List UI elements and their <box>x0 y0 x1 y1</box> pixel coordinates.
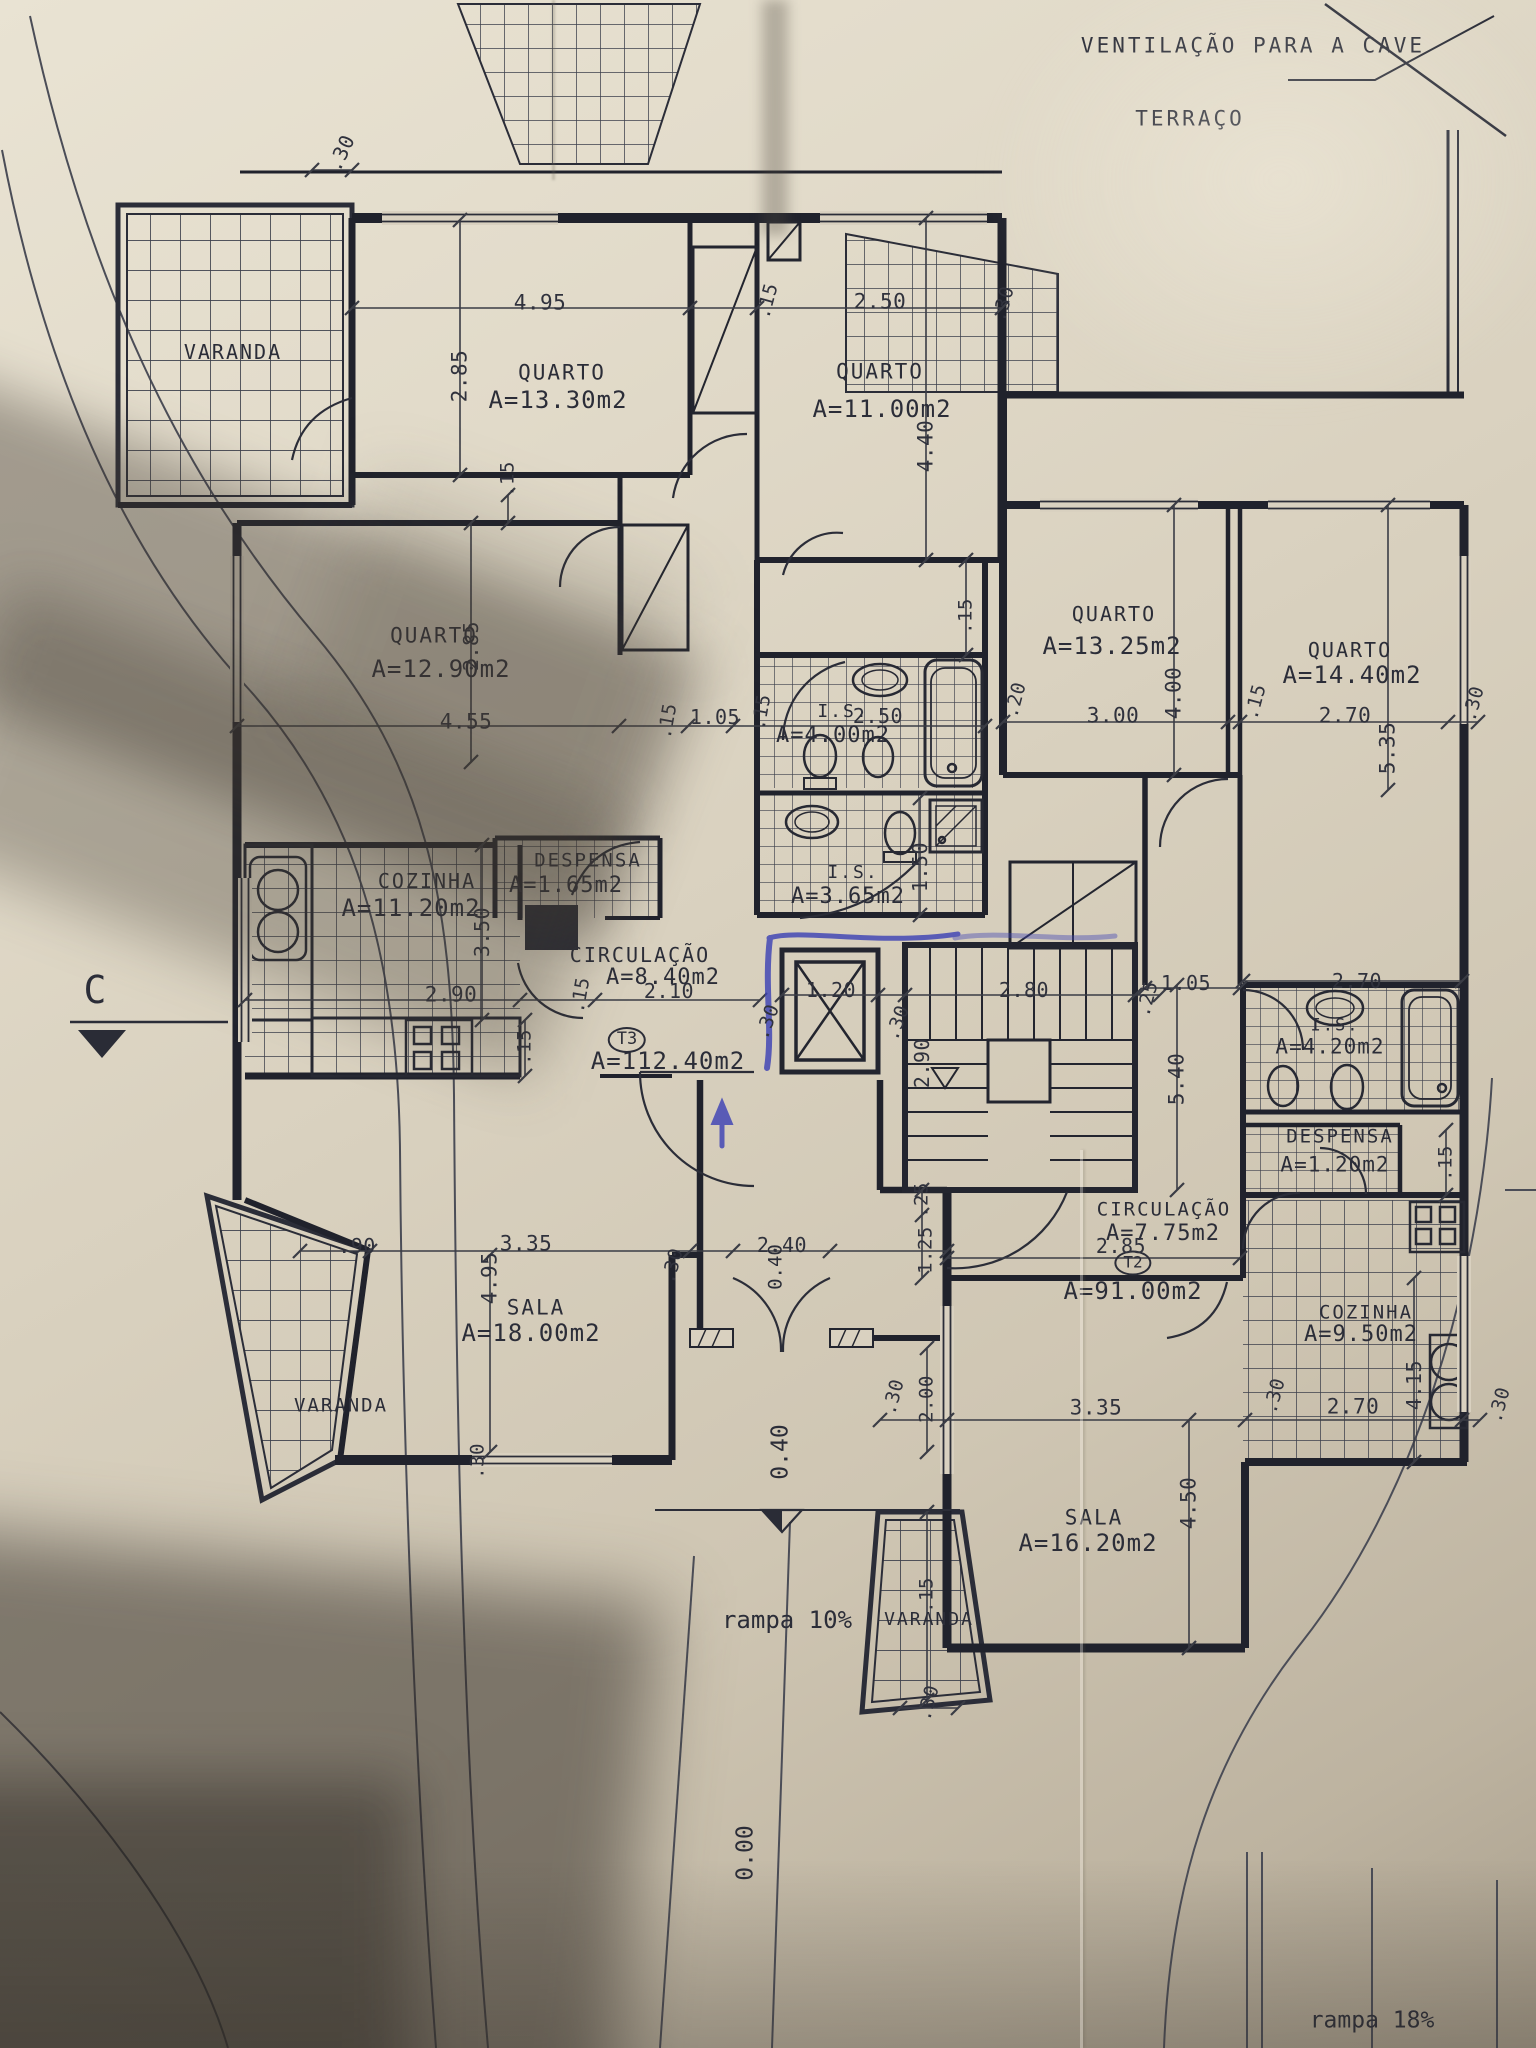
is-420-name: I.S. <box>1311 1018 1360 1035</box>
sala-t3-area: A=18.00m2 <box>461 1321 600 1345</box>
circulacao-t3-name: CIRCULAÇÃO <box>570 945 710 965</box>
dimension-label: 2.90 <box>912 1038 932 1088</box>
dimension-label: .20 <box>1002 680 1030 720</box>
dimension-label: .15 <box>1242 682 1270 722</box>
dimension-label: 4.40 <box>916 420 937 473</box>
sala-t2-area: A=16.20m2 <box>1018 1531 1157 1555</box>
dimension-label: 5.40 <box>1167 1053 1188 1106</box>
dimension-label: .15 <box>957 598 976 634</box>
is-400-area: A=4.00m2 <box>776 725 890 747</box>
dimension-label: .30 <box>915 1683 943 1723</box>
dimension-label: 2.80 <box>999 980 1049 1000</box>
quarto-1325-name: QUARTO <box>1072 604 1156 624</box>
cozinha-t3-area: A=11.20m2 <box>341 896 480 920</box>
rampa-18-label: rampa 18% <box>1310 2010 1435 2033</box>
dimension-label: 2.50 <box>853 706 903 726</box>
dimension-label: .30 <box>1460 684 1488 724</box>
dimension-label: .15 <box>569 976 594 1015</box>
quarto-1100-name: QUARTO <box>836 362 924 383</box>
is-365-name: I.S. <box>827 864 878 882</box>
dimension-label: 4.00 <box>1164 667 1185 720</box>
level-000-label: 0.00 <box>735 1825 758 1880</box>
t3-area: A=112.40m2 <box>591 1049 746 1073</box>
despensa-t2-name: DESPENSA <box>1286 1128 1394 1147</box>
quarto-1440-name: QUARTO <box>1308 640 1392 660</box>
dimension-label: 2.90 <box>425 985 478 1006</box>
dimension-label: 2.10 <box>644 981 694 1001</box>
dimension-label: .15 <box>750 693 775 732</box>
dimension-label: 3.35 <box>1070 1398 1123 1419</box>
label-layer: VENTILAÇÃO PARA A CAVETERRAÇOrampa 10%ra… <box>0 0 1536 2048</box>
dimension-label: .15 <box>1437 1145 1456 1181</box>
quarto-1325-area: A=13.25m2 <box>1042 634 1181 658</box>
dimension-label: 4.95 <box>514 293 567 314</box>
is-420-area: A=4.20m2 <box>1275 1037 1384 1058</box>
varanda-left-label: VARANDA <box>294 1397 388 1416</box>
dimension-label: 2.70 <box>1332 971 1382 991</box>
dimension-label: 1.25 <box>917 1226 936 1274</box>
dimension-label: .30 <box>659 1246 687 1286</box>
varanda-bottom-label: VARANDA <box>884 1611 974 1629</box>
despensa-t3-name: DESPENSA <box>534 852 642 871</box>
dimension-label: 2.50 <box>854 292 907 313</box>
dimension-label: 4.95 <box>480 1252 501 1305</box>
dimension-label: .30 <box>1261 1376 1289 1416</box>
dimension-label: 2.70 <box>1327 1397 1380 1418</box>
quarto-1440-area: A=14.40m2 <box>1282 663 1421 687</box>
cozinha-t3-name: COZINHA <box>378 871 476 891</box>
dimension-label: .15 <box>754 281 782 321</box>
cozinha-t2-name: COZINHA <box>1319 1304 1413 1323</box>
level-040-label: 0.40 <box>770 1424 793 1479</box>
rampa-10-label: rampa 10% <box>722 1608 852 1632</box>
terraco-label: TERRAÇO <box>1135 109 1245 130</box>
sala-t3-name: SALA <box>507 1298 566 1319</box>
dimension-label: .30 <box>990 284 1018 324</box>
quarto-1290-area: A=12.90m2 <box>371 657 510 681</box>
dimension-label: 1.05 <box>690 707 740 727</box>
dimension-label: 1.50 <box>910 842 930 892</box>
dimension-label: 2.85 <box>450 350 471 403</box>
dimension-label: .25 <box>1134 979 1162 1019</box>
dimension-label: 3.35 <box>500 1234 553 1255</box>
quarto-1100-area: A=11.00m2 <box>812 397 951 421</box>
dimension-label: 4.15 <box>1404 1360 1424 1410</box>
dimension-label: .90 <box>338 1236 376 1256</box>
despensa-t3-area: A=1.65m2 <box>509 875 623 897</box>
dimension-label: 4.55 <box>440 712 493 733</box>
dimension-label: .15 <box>516 1029 535 1065</box>
quarto-1330-area: A=13.30m2 <box>488 388 627 412</box>
dimension-label: .30 <box>1486 1385 1514 1425</box>
cozinha-t2-area: A=9.50m2 <box>1304 1324 1418 1346</box>
dimension-label: 5.35 <box>1378 722 1399 775</box>
dimension-label: .15 <box>656 702 681 741</box>
floor-plan-photo: VENTILAÇÃO PARA A CAVETERRAÇOrampa 10%ra… <box>0 0 1536 2048</box>
t2-area: A=91.00m2 <box>1063 1279 1202 1303</box>
dimension-label: .30 <box>883 1003 913 1043</box>
dimension-label: 2.00 <box>918 1375 937 1423</box>
is-365-area: A=3.65m2 <box>791 886 905 908</box>
dimension-label: 3.00 <box>1087 706 1140 727</box>
dimension-label: .15 <box>918 1577 937 1613</box>
dimension-label: 1.20 <box>806 980 856 1000</box>
dimension-label: .15 <box>499 461 518 497</box>
quarto-1330-name: QUARTO <box>518 363 606 384</box>
sala-t2-name: SALA <box>1065 1508 1124 1529</box>
dimension-label: 2.85 <box>1096 1236 1146 1256</box>
dimension-label: .30 <box>753 1002 783 1042</box>
dimension-label: 1.05 <box>1161 973 1211 993</box>
dimension-label: .30 <box>324 132 358 175</box>
ventilacao-cave-label: VENTILAÇÃO PARA A CAVE <box>1081 36 1425 57</box>
dimension-label: .30 <box>469 1443 488 1479</box>
section-c-label: C <box>84 971 107 1009</box>
dimension-label: .25 <box>913 1182 932 1218</box>
circulacao-t2-name: CIRCULAÇÃO <box>1097 1201 1231 1220</box>
varanda-topleft-label: VARANDA <box>184 342 282 362</box>
dimension-label: 2.70 <box>1319 706 1372 727</box>
dimension-label: 2.85 <box>461 621 481 671</box>
despensa-t2-area: A=1.20m2 <box>1280 1155 1389 1176</box>
dimension-label: 2.40 <box>757 1235 807 1255</box>
dimension-label: 3.50 <box>472 907 492 957</box>
dimension-label: .30 <box>880 1377 908 1417</box>
dimension-label: 4.50 <box>1179 1477 1200 1530</box>
